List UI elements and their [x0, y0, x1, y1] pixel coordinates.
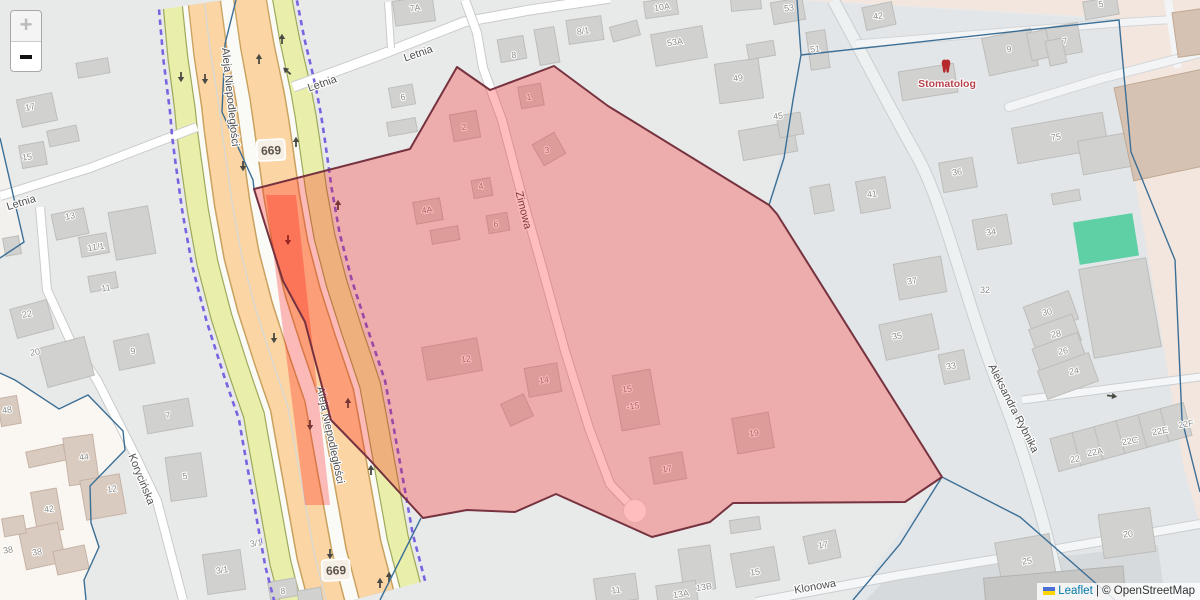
- svg-text:20: 20: [29, 346, 41, 358]
- svg-text:13A: 13A: [672, 588, 689, 600]
- svg-text:42: 42: [43, 503, 54, 514]
- svg-text:53: 53: [783, 2, 794, 13]
- svg-text:15: 15: [21, 151, 32, 162]
- svg-text:51: 51: [809, 43, 820, 54]
- svg-text:12: 12: [106, 483, 117, 494]
- svg-text:42: 42: [872, 10, 883, 21]
- svg-text:22: 22: [21, 308, 33, 320]
- svg-text:49: 49: [732, 72, 743, 83]
- svg-text:34: 34: [985, 226, 996, 237]
- svg-text:38: 38: [2, 544, 13, 555]
- svg-text:669: 669: [261, 143, 282, 158]
- svg-text:11: 11: [611, 584, 622, 595]
- svg-text:26: 26: [1057, 345, 1069, 357]
- svg-text:25: 25: [1021, 555, 1032, 566]
- svg-text:36: 36: [951, 166, 962, 177]
- svg-text:Stomatolog: Stomatolog: [918, 78, 976, 90]
- svg-text:20: 20: [1122, 528, 1133, 539]
- svg-text:33: 33: [945, 360, 956, 371]
- svg-text:7A: 7A: [409, 2, 421, 13]
- svg-text:28: 28: [1050, 328, 1062, 340]
- svg-text:44: 44: [78, 451, 89, 462]
- svg-text:3/1: 3/1: [215, 564, 229, 576]
- svg-text:3/1: 3/1: [249, 537, 263, 549]
- svg-text:17: 17: [817, 539, 828, 550]
- svg-text:32: 32: [980, 285, 990, 295]
- svg-text:35: 35: [891, 330, 902, 341]
- svg-text:13: 13: [64, 210, 76, 222]
- svg-text:22: 22: [1069, 453, 1081, 465]
- svg-text:11: 11: [101, 282, 112, 293]
- svg-text:38: 38: [31, 546, 42, 557]
- svg-text:24: 24: [1068, 365, 1080, 377]
- svg-text:17: 17: [24, 101, 36, 113]
- svg-text:8/1: 8/1: [576, 25, 590, 37]
- svg-text:37: 37: [906, 275, 917, 286]
- svg-text:41: 41: [866, 188, 877, 199]
- svg-text:48: 48: [1, 404, 12, 415]
- svg-text:669: 669: [326, 563, 347, 578]
- svg-text:45: 45: [772, 110, 783, 121]
- svg-text:30: 30: [1041, 306, 1053, 318]
- svg-text:75: 75: [1050, 131, 1061, 142]
- svg-text:15: 15: [749, 566, 760, 577]
